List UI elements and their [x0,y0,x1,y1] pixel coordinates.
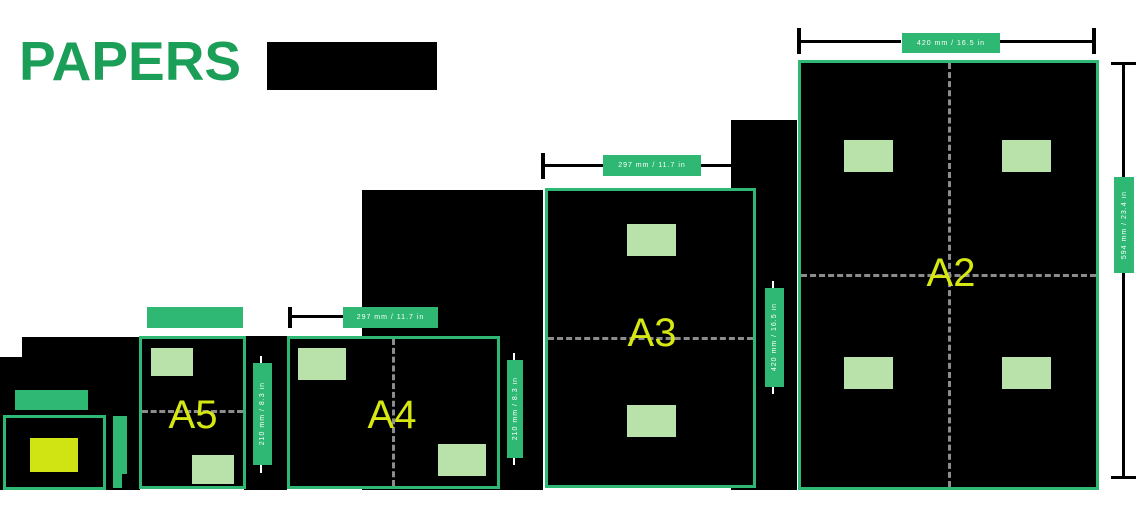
title-black-block [267,42,437,90]
a7-yellow-sheet [30,438,78,472]
a3-height-badge: 420 mm / 16.5 in [765,288,784,387]
a3-inner-sheet-bottom [627,405,676,437]
paper-a6 [3,415,106,490]
a2-inner-sheet-top-left [844,140,893,172]
a4-height-badge-tick-top [513,353,515,360]
a3-width-badge-label: 297 mm / 11.7 in [618,162,686,169]
page-title: PAPERS [19,34,241,89]
a2-dim-line-right-cap [1092,28,1096,54]
a3-label: A3 [628,313,677,353]
paper-a2: A2 [798,60,1099,490]
paper-a3: A3 [545,188,756,488]
a4-label: A4 [368,395,417,435]
a4-inner-sheet-bottom-right [438,444,486,476]
a4-inner-sheet-top-left [298,348,346,380]
a2-inner-sheet-bottom-left [844,357,893,389]
a5-inner-sheet-bottom-right [192,455,234,484]
a3-height-badge-label: 420 mm / 16.5 in [771,303,778,371]
a2-label: A2 [927,253,976,293]
a4-height-badge: 210 mm / 8.3 in [507,360,523,458]
a2-width-badge-label: 420 mm / 16.5 in [917,40,985,47]
a3-dim-line-left [545,164,603,167]
a4-height-badge-tick-bottom [513,458,515,465]
a5-height-badge-tick-bottom [260,465,262,473]
a2-dim-line-left [801,40,901,43]
a2-inner-sheet-bottom-right [1002,357,1051,389]
a3-inner-sheet-top [627,224,676,256]
a5-inner-sheet-top-left [151,348,193,376]
a3-width-badge: 297 mm / 11.7 in [603,155,701,176]
a3-height-badge-tick-bottom [772,387,774,394]
a4-width-badge: 297 mm / 11.7 in [343,307,438,328]
a4-dim-line [292,315,343,318]
a5-height-badge: 210 mm / 8.3 in [253,363,272,465]
a2-dim-line-right [1000,40,1094,43]
a5-height-badge-label: 210 mm / 8.3 in [259,382,266,445]
paper-sizes-diagram: PAPERS A5 210 mm / 8.3 in 297 mm / 11.7 … [0,0,1137,520]
a2-height-badge: 594 mm / 23.4 in [1114,177,1134,273]
a3-dim-line-right [701,164,731,167]
a4-width-badge-label: 297 mm / 11.7 in [357,314,425,321]
a6-width-badge [15,390,88,410]
a4-height-badge-label: 210 mm / 8.3 in [512,377,519,440]
paper-a5: A5 [139,336,246,489]
a2-width-badge: 420 mm / 16.5 in [902,33,1000,53]
a5-label: A5 [169,395,218,435]
a3-height-badge-tick-top [772,281,774,288]
a5-width-badge [147,307,243,328]
a2-inner-sheet-top-right [1002,140,1051,172]
paper-a4: A4 [287,336,500,489]
a5-height-badge-tick-top [260,356,262,363]
back-sheet-corner-notch [122,474,128,489]
a2-height-badge-label: 594 mm / 23.4 in [1121,191,1128,259]
a2-side-dim-bottom-cap [1111,476,1136,479]
